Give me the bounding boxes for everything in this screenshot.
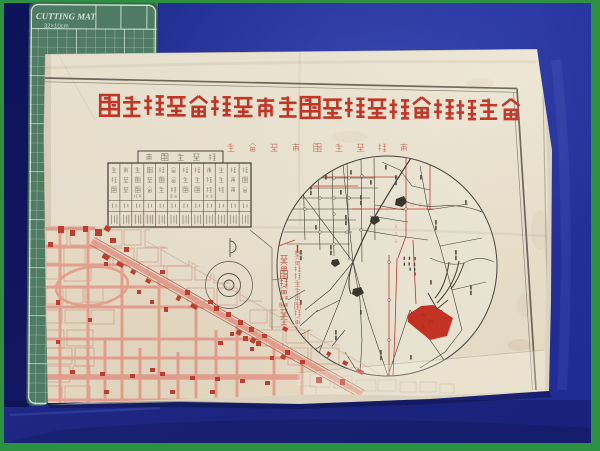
svg-text:CUTTING MAT: CUTTING MAT [36, 11, 97, 21]
svg-text:32×10cm: 32×10cm [44, 24, 69, 30]
